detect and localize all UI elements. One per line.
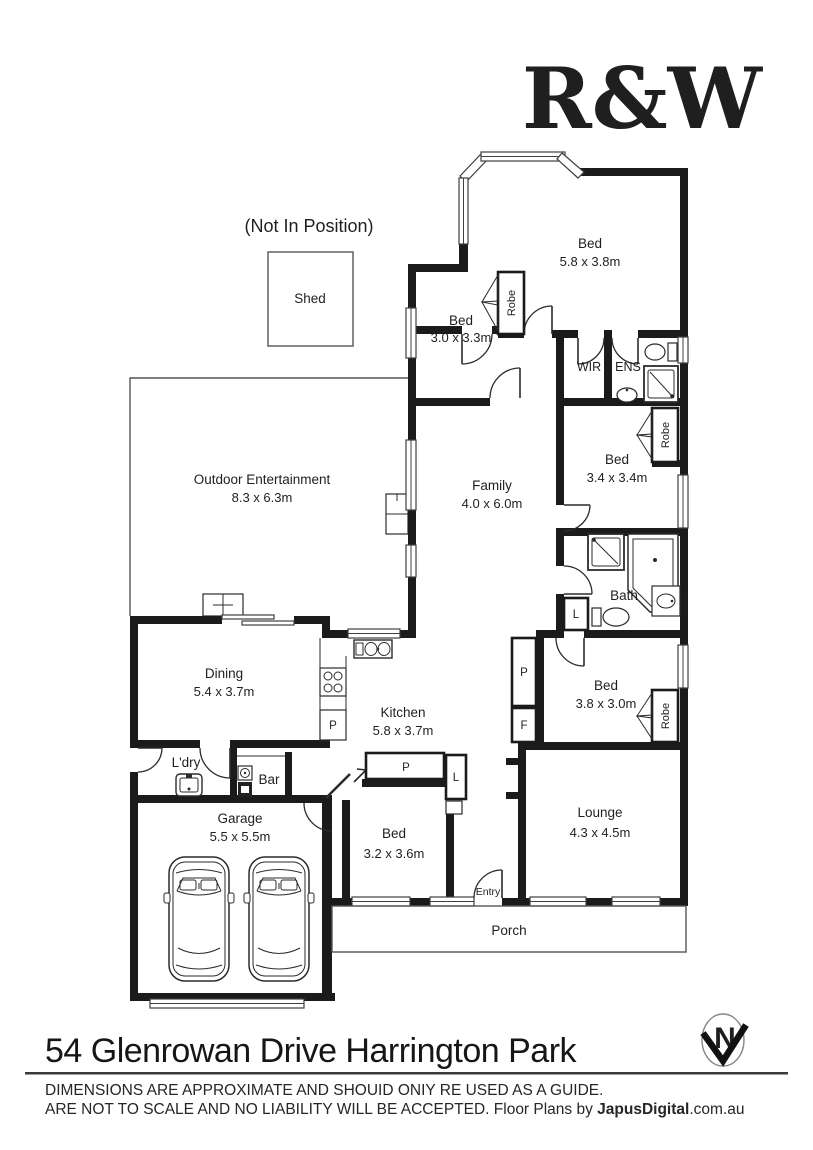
bbq-icon [203, 594, 243, 616]
bar-appliance-icon [238, 782, 252, 797]
divider-rule [25, 1072, 788, 1075]
bath-label: Bath [610, 588, 638, 603]
stove-icon [320, 668, 346, 696]
entry-label: Entry [476, 886, 501, 898]
bed5-label: Bed [382, 826, 406, 841]
bath-shower-icon [588, 534, 624, 570]
kitchen-label: Kitchen [380, 705, 425, 720]
outdoor-cabinet-icon [386, 494, 408, 534]
kitchen-dims: 5.8 x 3.7m [373, 723, 434, 738]
ens-shower-icon [644, 366, 678, 402]
porch-outline: Porch [332, 906, 686, 952]
disclaimer-line1: DIMENSIONS ARE APPROXIMATE AND SHOUID ON… [45, 1082, 603, 1099]
rw-logo: R&W [522, 49, 764, 148]
dining-label: Dining [205, 666, 243, 681]
bar-label: Bar [258, 772, 280, 787]
bath-vanity-icon [652, 586, 680, 616]
bath-toilet-icon [592, 608, 629, 626]
robe-bed3-label: Robe [660, 422, 672, 448]
bed-master-label: Bed [578, 236, 602, 251]
bed3-label: Bed [605, 452, 629, 467]
family-dims: 4.0 x 6.0m [462, 496, 523, 511]
garage-dims: 5.5 x 5.5m [210, 829, 271, 844]
family-label: Family [472, 478, 512, 493]
bar-sink-icon [238, 766, 252, 780]
address-title: 54 Glenrowan Drive Harrington Park [45, 1032, 578, 1070]
outdoor-label: Outdoor Entertainment [194, 472, 331, 487]
car-1 [164, 857, 234, 981]
disclaimer-line2: ARE NOT TO SCALE AND NO LIABILITY WILL B… [45, 1101, 744, 1118]
north-arrow-icon: N [702, 1014, 746, 1066]
lounge-dims: 4.3 x 4.5m [570, 825, 631, 840]
bed5-dims: 3.2 x 3.6m [364, 846, 425, 861]
fixtures: P [164, 343, 680, 981]
ens-vanity-icon [617, 388, 637, 402]
shed-outline: Shed [268, 252, 353, 346]
shed-label: Shed [294, 291, 326, 306]
outdoor-dims: 8.3 x 6.3m [232, 490, 293, 505]
bed-master-dims: 5.8 x 3.8m [560, 254, 621, 269]
robe-bed2-label: Robe [506, 290, 518, 316]
not-in-position-note: (Not In Position) [244, 216, 373, 236]
robe-bed4-label: Robe [660, 703, 672, 729]
windows [150, 152, 688, 1008]
laundry-label: L'dry [172, 755, 201, 770]
bed4-dims: 3.8 x 3.0m [576, 696, 637, 711]
dining-dims: 5.4 x 3.7m [194, 684, 255, 699]
bed2-label: Bed [449, 313, 473, 328]
kitchen-sink-icon [354, 640, 392, 658]
garage-label: Garage [217, 811, 262, 826]
car-2 [244, 857, 314, 981]
bed3-dims: 3.4 x 3.4m [587, 470, 648, 485]
porch-label: Porch [491, 923, 526, 938]
garage-door [150, 999, 304, 1008]
floorplan-page: R&W (Not In Position) Shed Outdoor Enter… [0, 0, 813, 1150]
fridge-label: F [520, 720, 527, 732]
hall-pantry-label: P [402, 762, 410, 774]
kitchen-pantry-label: P [329, 720, 337, 732]
laundry-tub-icon [176, 774, 202, 796]
lounge-label: Lounge [577, 805, 622, 820]
bed2-dims: 3.0 x 3.3m [431, 330, 492, 345]
bed4-label: Bed [594, 678, 618, 693]
ens-label: ENS [615, 360, 641, 374]
bath-linen-label: L [573, 609, 580, 621]
sliding-door [222, 615, 294, 625]
outdoor-entertainment-boundary: Outdoor Entertainment 8.3 x 6.3m [130, 378, 410, 616]
wir-label: WIR [577, 360, 601, 374]
pantry-label: P [520, 667, 528, 679]
brand-name: JapusDigital [597, 1101, 689, 1118]
ens-toilet-icon [645, 343, 677, 361]
hall-linen-label: L [453, 772, 460, 784]
